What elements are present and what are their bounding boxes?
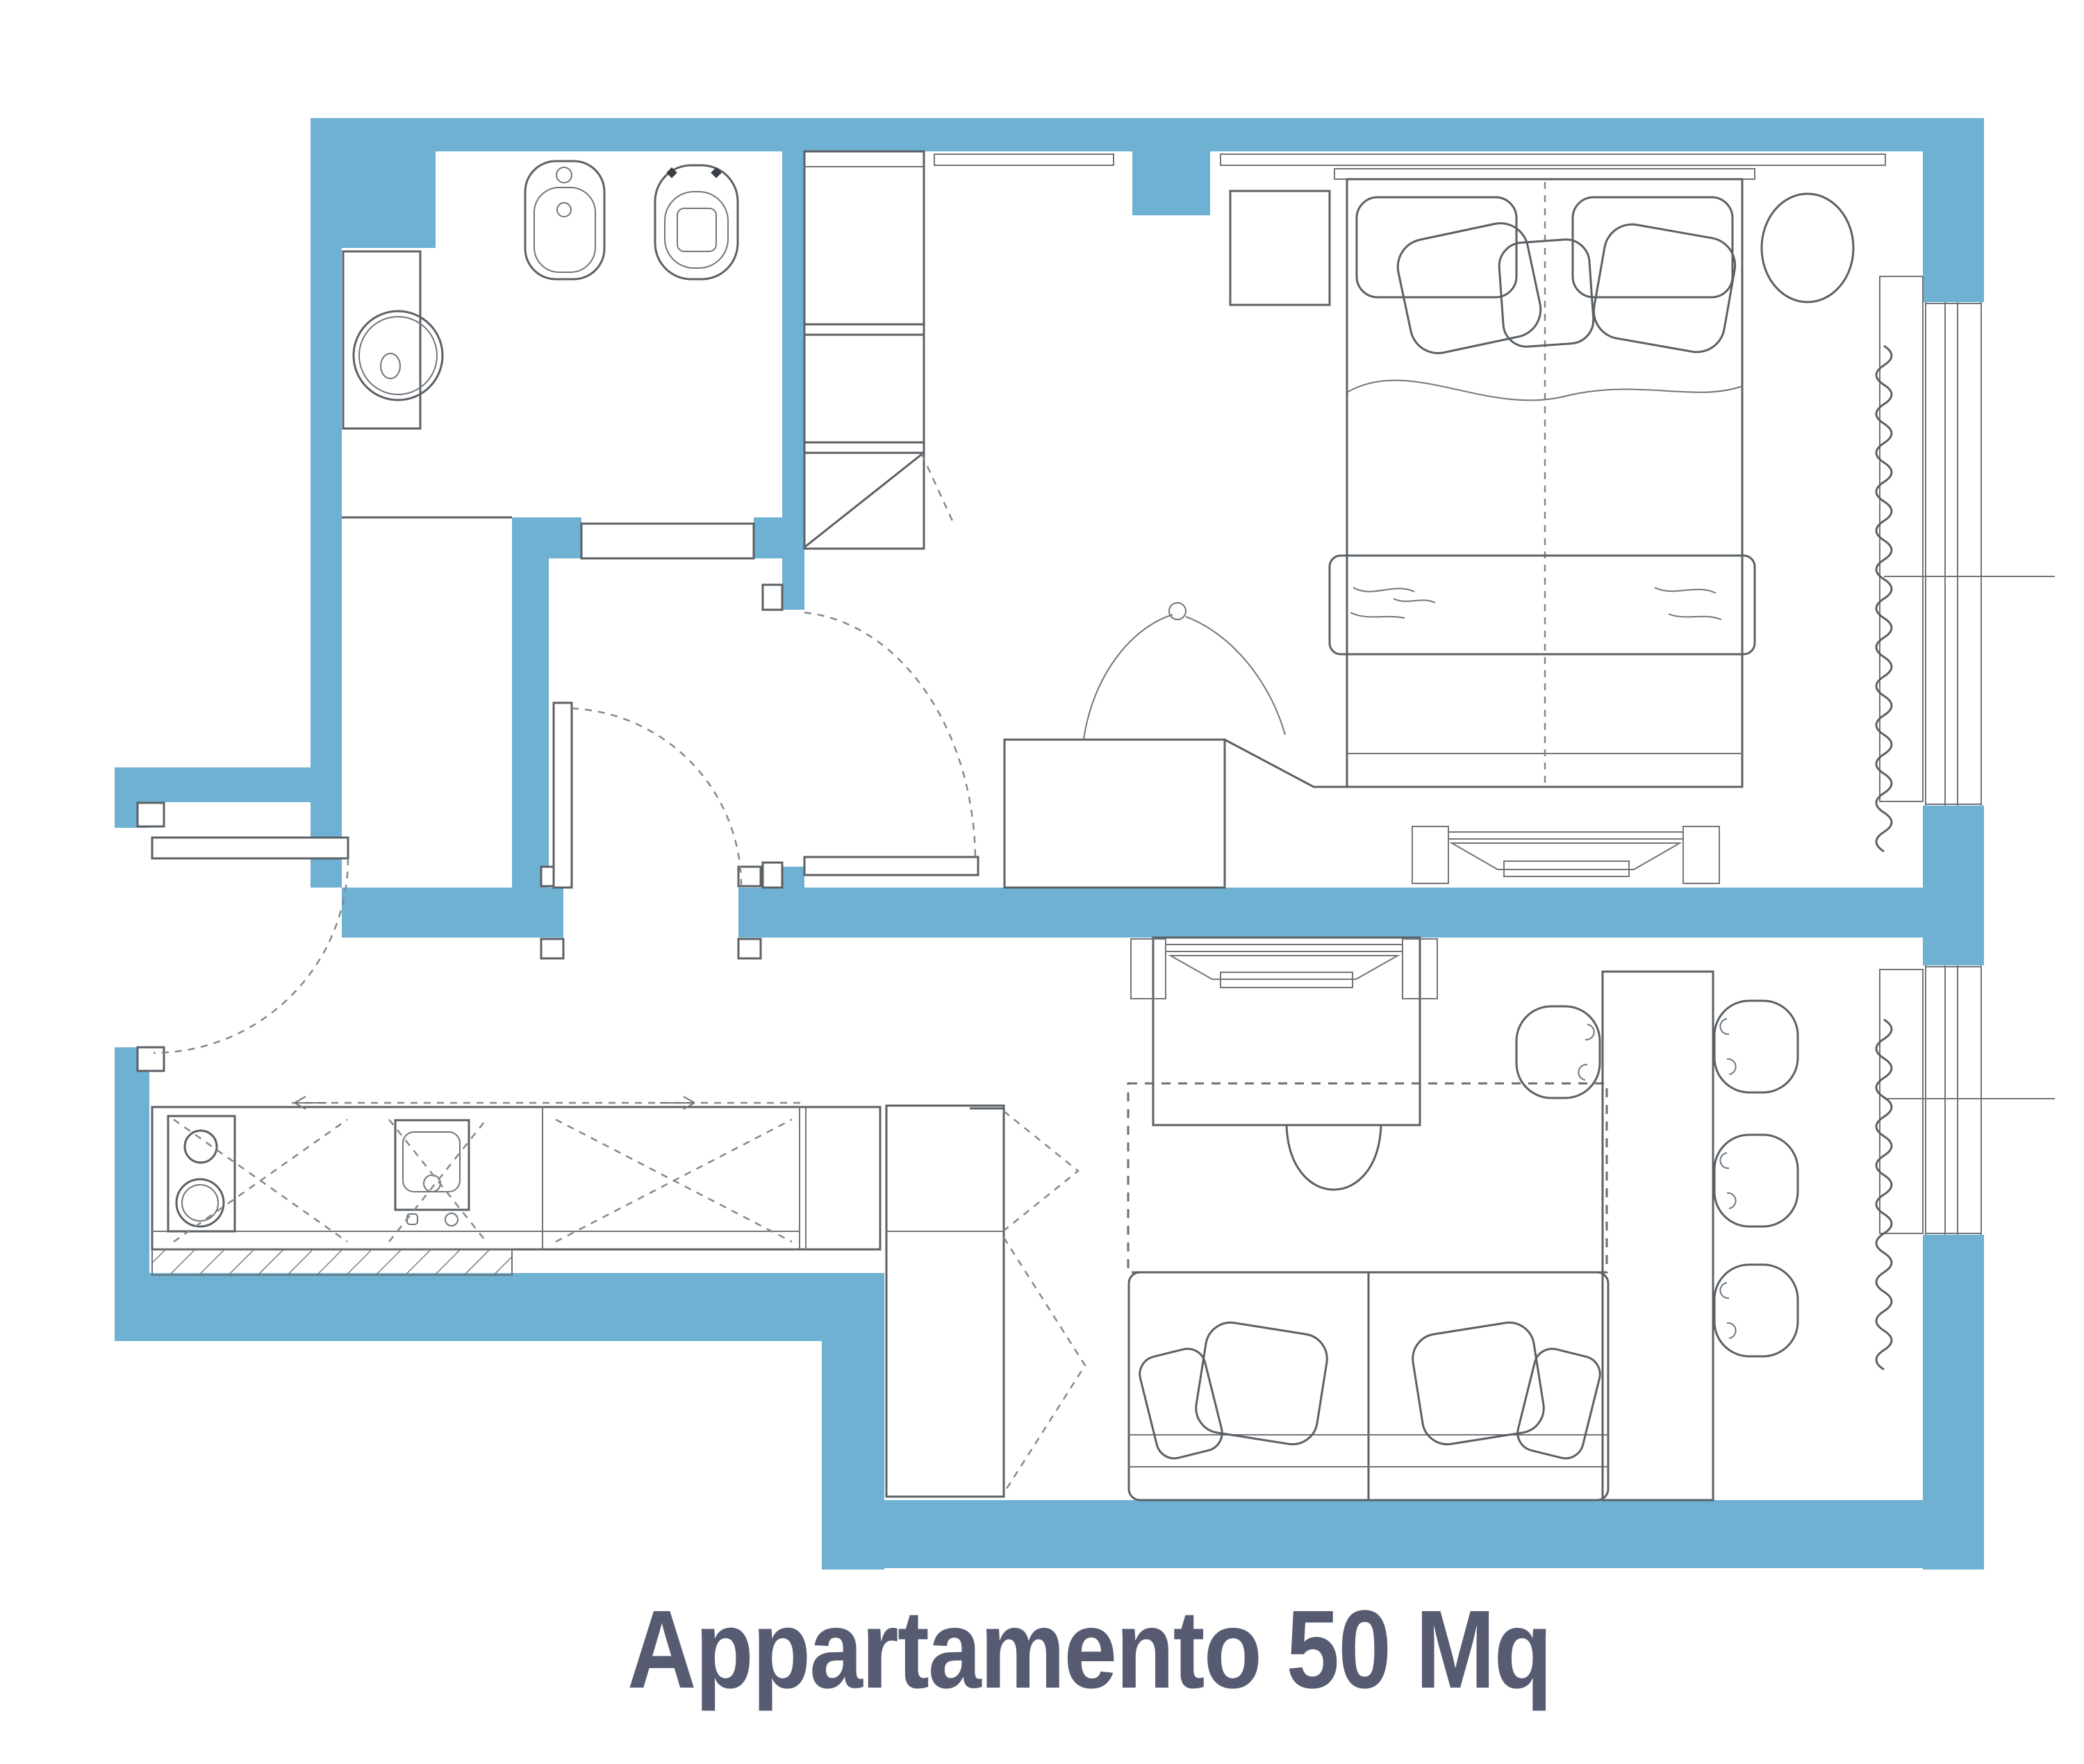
corridor-door-leaf <box>554 703 572 888</box>
entry-door-jamb-bottom <box>138 1047 164 1071</box>
floor-plan: Appartamento 50 Mq <box>0 0 2084 1764</box>
corridor-door-jamb <box>738 939 761 958</box>
wall-bathroom-bottom-left <box>549 517 581 558</box>
kitchen-hatch-strip <box>152 1249 512 1275</box>
plan-title: Appartamento 50 Mq <box>627 1587 1551 1711</box>
wall-living-bottom <box>822 1500 1984 1568</box>
bedroom-door-jamb <box>763 863 782 888</box>
wall-right-middle <box>1923 806 1984 965</box>
wall-kitchen-bottom <box>115 1273 884 1341</box>
bathroom-door-leaf <box>581 524 754 558</box>
wall-right-bottom <box>1923 1235 1984 1570</box>
wall-bathroom-right <box>782 151 804 610</box>
wall-bedroom-door-stub <box>782 867 804 888</box>
wall-bathroom-bottom-right <box>754 517 782 558</box>
wall-middle-left <box>342 888 563 938</box>
wall-right-top <box>1923 151 1984 302</box>
wall-middle-right <box>738 888 1923 938</box>
bedroom-door-leaf <box>804 857 978 875</box>
bedroom-door-jamb <box>763 585 782 610</box>
wall-top-stub <box>1132 151 1210 215</box>
corridor-door-jamb <box>541 939 563 958</box>
entry-door-leaf <box>152 838 348 858</box>
wall-top <box>311 118 1984 151</box>
wall-annex-strip <box>512 517 549 888</box>
entry-door-jamb-top <box>138 803 164 826</box>
